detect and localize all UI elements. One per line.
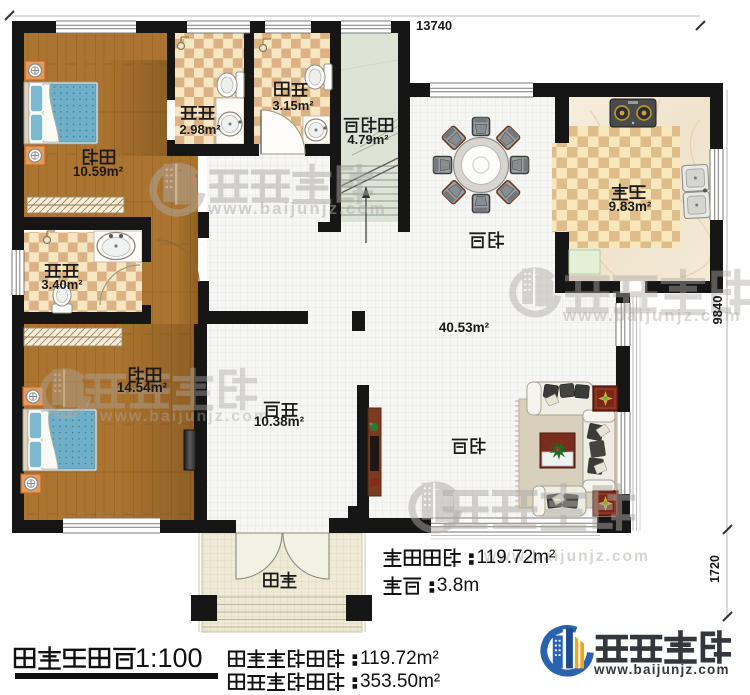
svg-text:353.50m²: 353.50m² <box>360 671 440 692</box>
svg-text:3.15m²: 3.15m² <box>272 98 314 113</box>
svg-text:9840: 9840 <box>710 296 725 325</box>
svg-text:10.59m²: 10.59m² <box>73 164 124 179</box>
svg-text:119.72m²: 119.72m² <box>476 547 555 568</box>
svg-text:10.38m²: 10.38m² <box>254 414 305 429</box>
svg-text:40.53m²: 40.53m² <box>439 320 490 335</box>
svg-text:2.98m²: 2.98m² <box>179 122 221 137</box>
svg-text:www.baijunjz.com: www.baijunjz.com <box>593 662 730 677</box>
svg-text:119.72m²: 119.72m² <box>360 648 439 669</box>
svg-text:1720: 1720 <box>708 555 722 583</box>
svg-text:1:100: 1:100 <box>135 643 203 673</box>
svg-text:www.baijunjz.com: www.baijunjz.com <box>99 408 270 425</box>
svg-text:14.54m²: 14.54m² <box>117 380 168 395</box>
svg-text:3.8m: 3.8m <box>437 575 479 596</box>
svg-text:www.baijunjz.com: www.baijunjz.com <box>207 199 387 218</box>
svg-text:3.40m²: 3.40m² <box>41 277 83 292</box>
svg-text:13740: 13740 <box>416 18 452 33</box>
svg-text:9.83m²: 9.83m² <box>609 199 652 214</box>
svg-text:4.79m²: 4.79m² <box>347 132 389 147</box>
